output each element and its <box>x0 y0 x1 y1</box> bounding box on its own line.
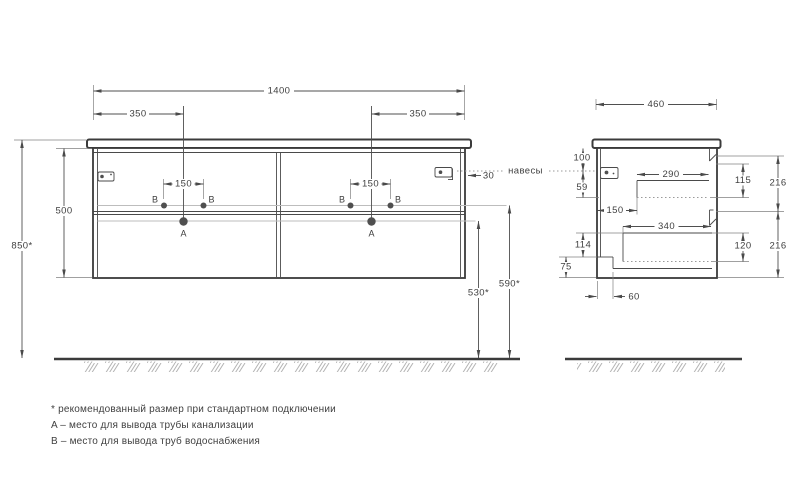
point-a-label: A <box>180 229 186 239</box>
dim-drawer-bottom-offset: 114 <box>572 233 594 257</box>
floor <box>54 359 742 372</box>
note-recommended: * рекомендованный размер при стандартном… <box>51 404 336 415</box>
hinge-icon-left <box>98 172 114 181</box>
dim-sink-offset-left-label: 350 <box>129 109 146 120</box>
dim-recess-height: 75 <box>559 257 574 278</box>
dim-lower-drawer-height: 120 <box>732 233 754 262</box>
front-cabinet-structure <box>87 140 471 279</box>
technical-drawing-page: 1400 350 350 150 150 <box>0 0 800 480</box>
dim-drawer-bottom-offset-label: 114 <box>575 240 591 251</box>
dim-hanger-top-label: 100 <box>573 153 590 164</box>
point-b-label: B <box>395 195 401 205</box>
footnotes: * рекомендованный размер при стандартном… <box>51 404 336 447</box>
dim-tap-spacing-right-label: 150 <box>362 179 379 190</box>
floor-hatching-right <box>577 362 725 373</box>
dim-lower-drawer-height-label: 120 <box>734 241 751 252</box>
front-countertop <box>87 140 471 149</box>
dim-lower-front-height-label: 216 <box>769 241 786 252</box>
dim-body-height: 500 <box>52 149 92 278</box>
dim-mount-height: 850* <box>8 140 86 358</box>
hinges-label: навесы <box>508 166 543 177</box>
drain-point-a <box>367 217 375 225</box>
supply-point-b <box>201 203 207 209</box>
point-b-label: B <box>339 195 345 205</box>
dim-sink-offset-right: 350 <box>372 109 465 120</box>
dim-sink-offset-right-label: 350 <box>409 109 426 120</box>
dim-upper-drawer-height: 115 <box>732 164 754 198</box>
dim-body-height-label: 500 <box>55 206 72 217</box>
dim-upper-drawer-depth-label: 290 <box>662 169 679 180</box>
dim-upper-front-height-label: 216 <box>769 178 786 189</box>
point-b-label: B <box>208 195 214 205</box>
point-b-label: B <box>152 195 158 205</box>
dim-drain-height: 530* <box>465 221 493 358</box>
drain-point-a <box>179 217 187 225</box>
dim-hanger-top-offset: 100 <box>571 149 593 172</box>
floor-hatching-left <box>82 362 500 373</box>
dim-recess-depth-label: 60 <box>628 292 639 303</box>
supply-point-b <box>161 203 167 209</box>
front-cabinet-body <box>93 148 465 278</box>
dim-depth: 460 <box>596 99 717 110</box>
dim-hanger-to-drawer: 59 <box>574 172 590 198</box>
dim-upper-drawer-height-label: 115 <box>735 175 751 186</box>
dim-depth-label: 460 <box>647 99 664 110</box>
supply-point-b <box>388 203 394 209</box>
dim-sink-offset-left: 350 <box>94 109 184 120</box>
note-point-b: B – место для вывода труб водоснабжения <box>51 435 260 447</box>
dim-recess-depth: 60 <box>585 292 640 303</box>
wall-hanger-icon <box>601 168 619 179</box>
dim-width-label: 1400 <box>268 86 291 97</box>
dim-lower-drawer-depth-label: 340 <box>658 221 675 232</box>
supply-point-b <box>348 203 354 209</box>
side-countertop <box>593 140 721 149</box>
front-view: 1400 350 350 150 150 <box>8 85 600 358</box>
dim-hanger-gap-label: 59 <box>576 182 587 193</box>
dim-lower-front-height: 216 <box>767 212 789 278</box>
point-a-label: A <box>368 229 374 239</box>
dim-hinge-offset: 30 <box>468 171 494 182</box>
note-point-a: A – место для вывода трубы канализации <box>51 419 254 431</box>
side-view: 460 100 59 290 115 216 <box>559 99 790 303</box>
dim-tap-spacing-left-label: 150 <box>175 179 192 190</box>
hinges-callout: навесы <box>457 166 600 177</box>
dim-upper-front-height: 216 <box>767 156 789 212</box>
dim-wall-to-drawer-label: 150 <box>606 205 623 216</box>
dim-supply-height: 590* <box>496 206 524 359</box>
dim-mount-height-label: 850* <box>11 241 32 252</box>
dim-drain-height-label: 530* <box>468 288 489 299</box>
dim-supply-height-label: 590* <box>499 279 520 290</box>
vanity-drawing: 1400 350 350 150 150 <box>0 0 800 480</box>
dim-hinge-offset-label: 30 <box>483 171 494 182</box>
dim-recess-height-label: 75 <box>560 262 571 273</box>
